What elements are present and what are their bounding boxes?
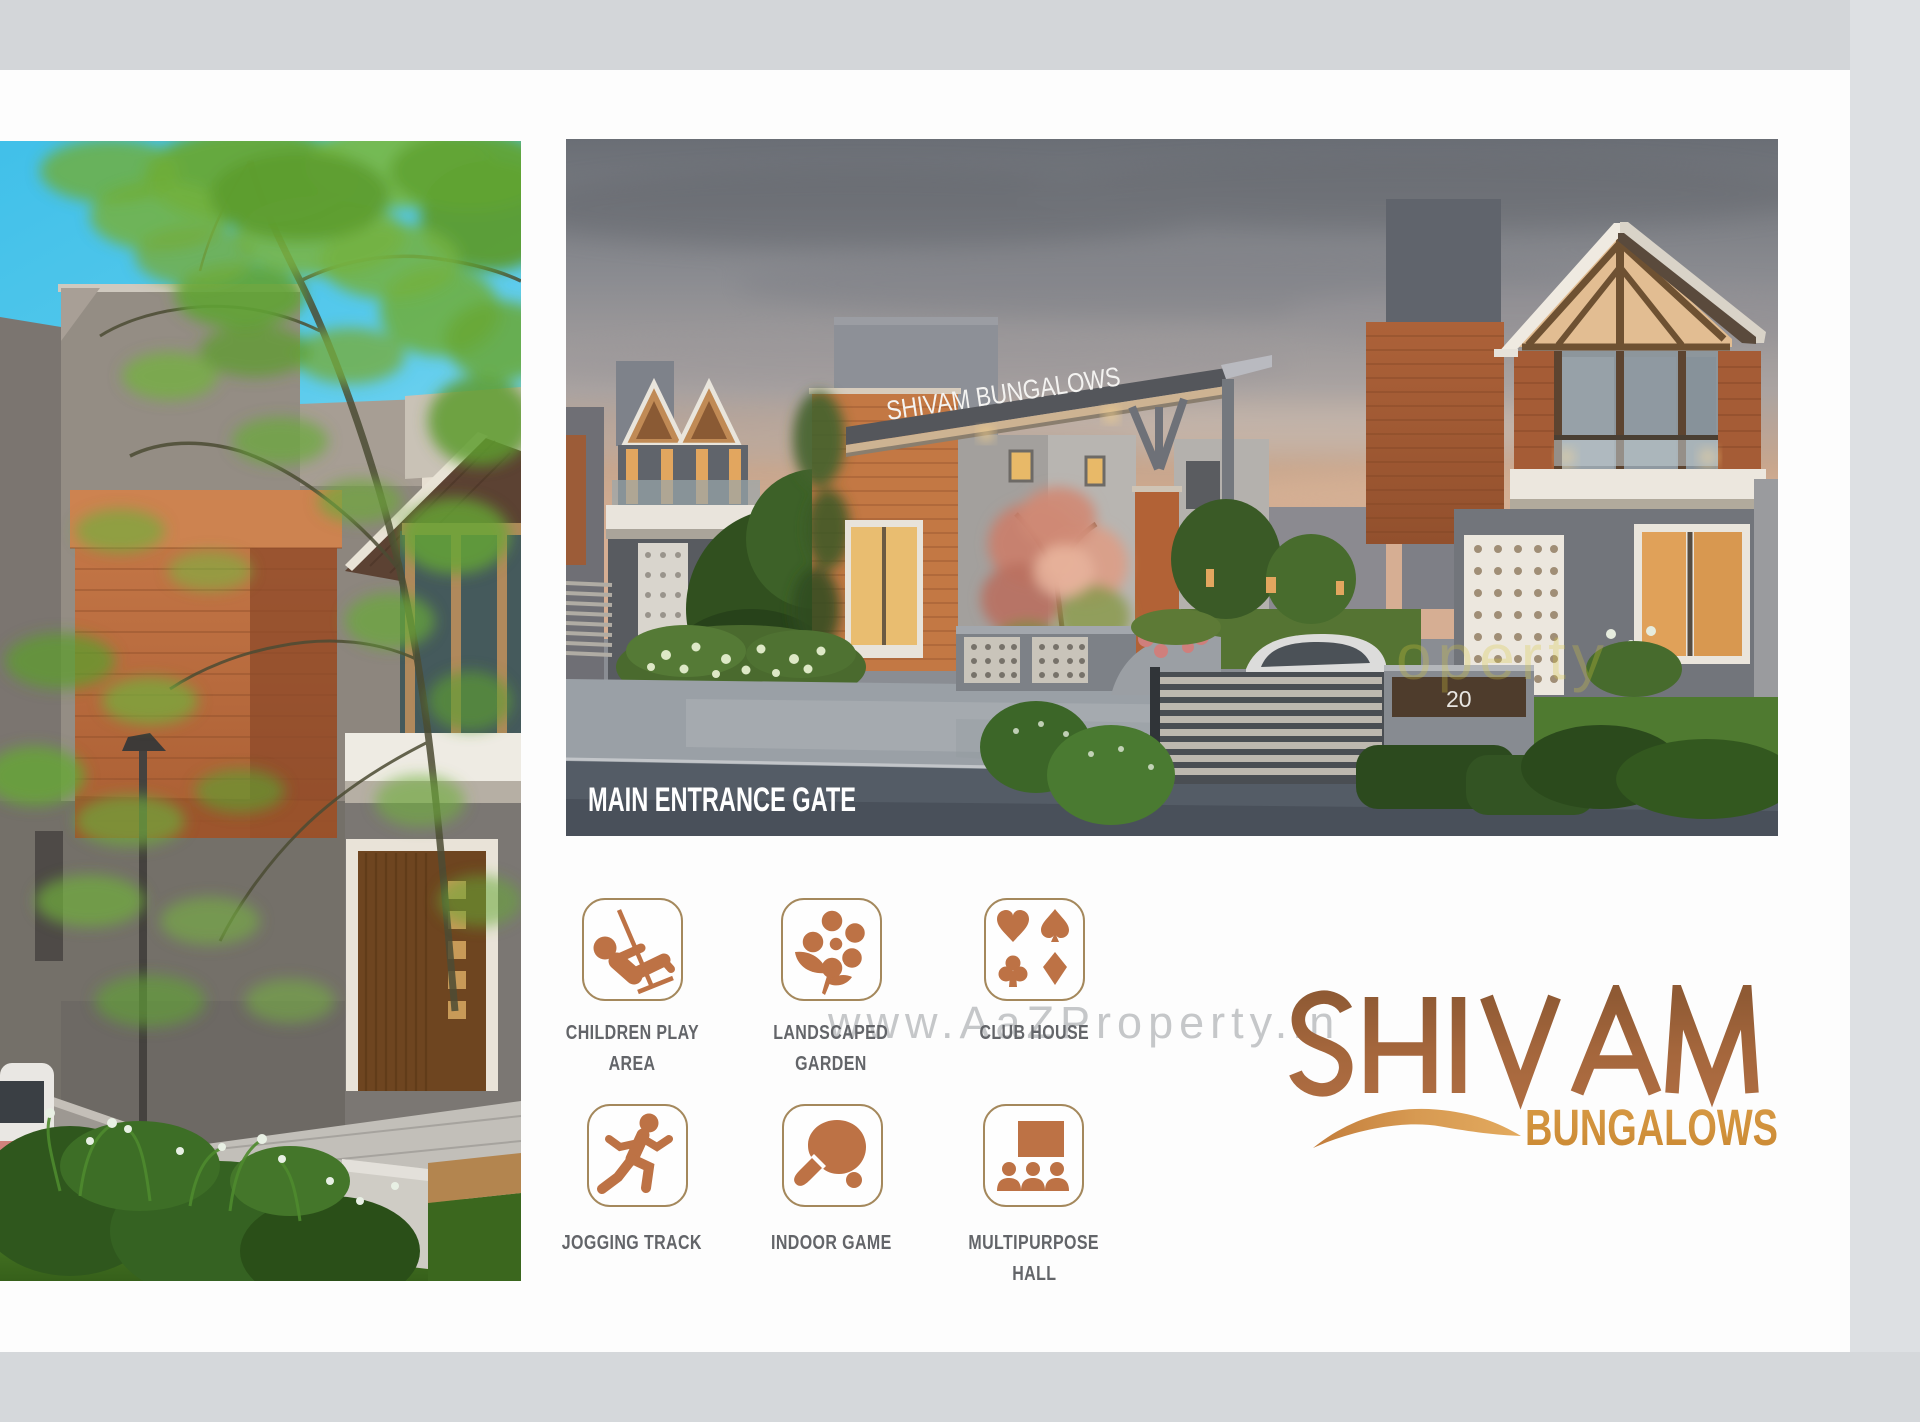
svg-text:BUNGALOWS: BUNGALOWS [1525,1099,1778,1156]
svg-text:operty: operty [1396,621,1610,693]
svg-text:MAIN ENTRANCE GATE: MAIN ENTRANCE GATE [588,781,856,819]
